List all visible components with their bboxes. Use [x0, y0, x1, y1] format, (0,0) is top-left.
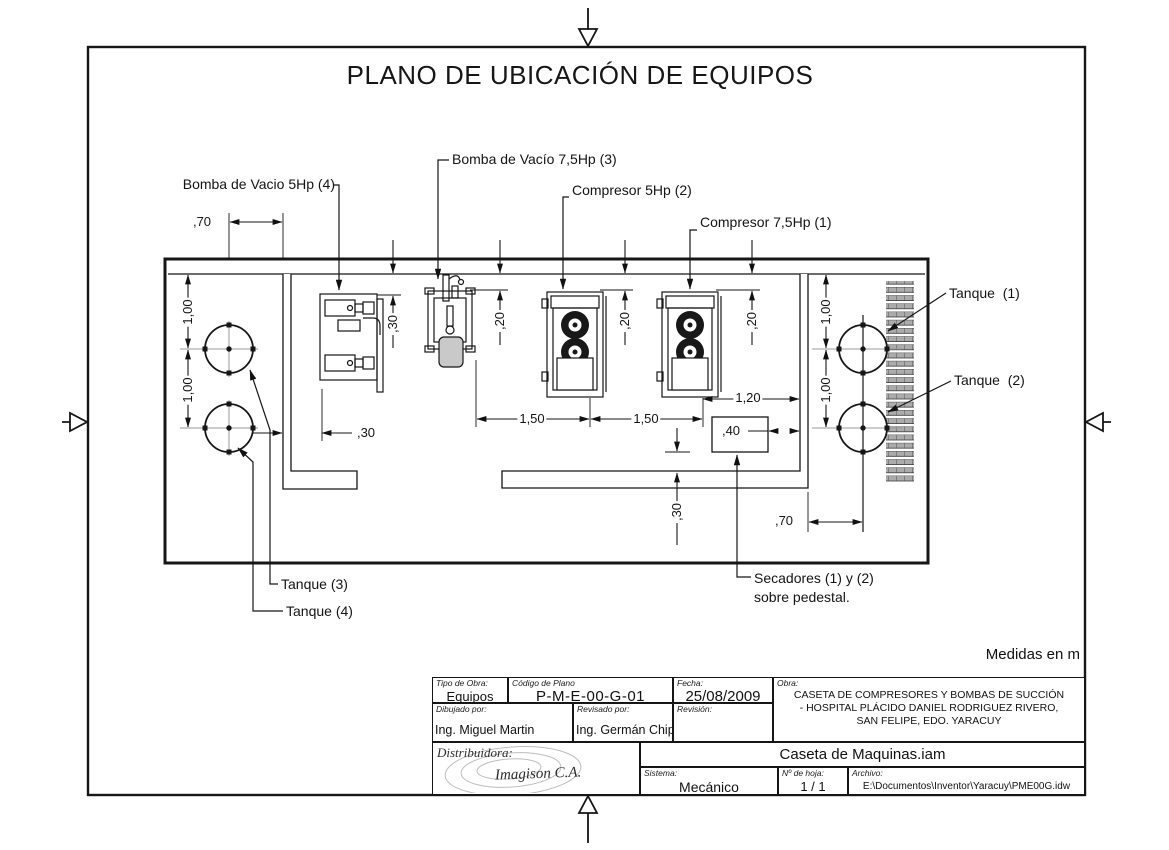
distribuidora-label: Distribuidora: — [437, 745, 513, 761]
distribuidora-name: Imagison C.A. — [495, 765, 582, 785]
dim-wall-gap: ,30 — [355, 426, 377, 440]
cell-revisado: Revisado por: Ing. Germán Chipre — [573, 703, 673, 742]
dim-right-offset: ,70 — [773, 514, 795, 528]
dim-left-tank-gap-2: 1,00 — [181, 375, 195, 404]
cell-sistema: Sistema: Mecánico — [640, 767, 778, 795]
compresor-7-5hp-shape — [657, 292, 721, 397]
dim-right-tank-gap-1: 1,00 — [819, 297, 833, 326]
dim-comp1-wall: 1,20 — [733, 391, 762, 405]
fecha-label: Fecha: — [674, 678, 772, 688]
compresor-5hp-shape — [542, 292, 606, 397]
cell-dibujado: Dibujado por: Ing. Miguel Martin — [432, 703, 573, 742]
obra-label: Obra: — [774, 678, 1084, 688]
leader-lines — [238, 160, 951, 611]
label-compresor-7-5hp: Compresor 7,5Hp (1) — [700, 214, 832, 230]
label-tanque-2: Tanque (2) — [954, 372, 1025, 388]
dim-pump4-offset: ,30 — [386, 313, 400, 335]
label-bomba-vacio-7-5hp: Bomba de Vacío 7,5Hp (3) — [452, 151, 617, 167]
tipo-de-obra-label: Tipo de Obra: — [433, 678, 507, 688]
cell-hoja: Nº de hoja: 1 / 1 — [778, 767, 848, 795]
revision-label: Revisión: — [674, 704, 772, 714]
cell-assembly: Caseta de Maquinas.iam — [640, 742, 1085, 767]
bomba-vacio-5hp-shape — [320, 294, 383, 392]
right-center-mark — [1086, 413, 1103, 431]
dim-right-tank-gap-2: 1,00 — [819, 375, 833, 404]
label-compresor-5hp: Compresor 5Hp (2) — [572, 182, 692, 198]
dim-pump3-offset: ,20 — [493, 310, 507, 332]
tanks — [203, 323, 890, 455]
dibujado-value: Ing. Miguel Martin — [433, 723, 572, 737]
cell-codigo-de-plano: Código de Plano P-M-E-00-G-01 — [508, 677, 673, 703]
dim-spacing-1: 1,50 — [517, 412, 546, 426]
leader-bomba-7-5hp — [438, 160, 449, 279]
cell-revision: Revisión: — [673, 703, 773, 742]
label-tanque-4: Tanque (4) — [286, 603, 353, 619]
drawing-sheet: PLANO DE UBICACIÓN DE EQUIPOS Medidas en… — [0, 0, 1169, 850]
hoja-label: Nº de hoja: — [779, 768, 847, 778]
label-secadores-line2: sobre pedestal. — [754, 589, 850, 605]
revisado-value: Ing. Germán Chipre — [574, 723, 672, 737]
archivo-value: E:\Documentos\Inventor\Yaracuy\PME00G.id… — [849, 781, 1084, 792]
label-tanque-1: Tanque (1) — [949, 285, 1020, 301]
dim-comp1-offset: ,20 — [745, 310, 759, 332]
cell-distribuidora: Distribuidora: Imagison C.A. — [432, 742, 640, 795]
leader-tanque-3 — [250, 370, 278, 584]
tipo-de-obra-value: Equipos — [433, 689, 507, 704]
label-bomba-vacio-5hp: Bomba de Vacio 5Hp (4) — [155, 176, 335, 192]
dibujado-label: Dibujado por: — [433, 704, 572, 714]
top-center-mark — [579, 29, 597, 46]
dim-secadores-width: ,40 — [720, 424, 742, 438]
hoja-value: 1 / 1 — [779, 779, 847, 794]
left-center-mark — [70, 413, 87, 431]
dim-spacing-2: 1,50 — [631, 412, 660, 426]
leader-compresor-5hp — [563, 197, 569, 289]
sistema-label: Sistema: — [641, 768, 777, 778]
label-secadores-line1: Secadores (1) y (2) — [754, 570, 874, 586]
assembly-name: Caseta de Maquinas.iam — [641, 746, 1084, 763]
cell-tipo-de-obra: Tipo de Obra: Equipos — [432, 677, 508, 703]
codigo-label: Código de Plano — [509, 678, 672, 688]
dim-comp2-offset: ,20 — [618, 310, 632, 332]
dim-left-offset: ,70 — [191, 215, 213, 229]
cell-archivo: Archivo: E:\Documentos\Inventor\Yaracuy\… — [848, 767, 1085, 795]
cell-obra: Obra: CASETA DE COMPRESORES Y BOMBAS DE … — [773, 677, 1085, 742]
leader-tanque-4 — [238, 448, 283, 611]
cell-fecha: Fecha: 25/08/2009 — [673, 677, 773, 703]
obra-line2: - HOSPITAL PLÁCIDO DANIEL RODRIGUEZ RIVE… — [774, 702, 1084, 714]
units-note: Medidas en m — [920, 646, 1080, 663]
bottom-center-mark — [579, 796, 597, 813]
obra-line3: SAN FELIPE, EDO. YARACUY — [774, 715, 1084, 727]
dim-left-tank-gap-1: 1,00 — [181, 297, 195, 326]
page-title: PLANO DE UBICACIÓN DE EQUIPOS — [330, 60, 830, 91]
louver-grille — [886, 281, 914, 483]
sistema-value: Mecánico — [641, 779, 777, 795]
obra-line1: CASETA DE COMPRESORES Y BOMBAS DE SUCCIÓ… — [774, 689, 1084, 701]
label-tanque-3: Tanque (3) — [281, 576, 348, 592]
bomba-vacio-7-5hp-shape — [425, 275, 475, 367]
archivo-label: Archivo: — [849, 768, 1084, 778]
revisado-label: Revisado por: — [574, 704, 672, 714]
dim-bottom-gap: ,30 — [670, 501, 684, 523]
